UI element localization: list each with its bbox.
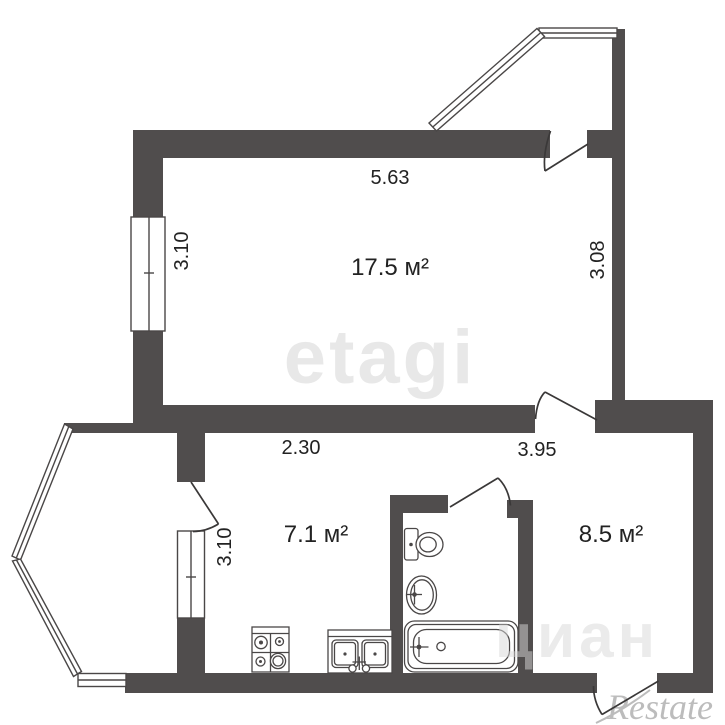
kitchen-sink-drain-dot <box>343 652 346 655</box>
dimension-top: 5.63 <box>371 167 410 189</box>
kitchen-sink-tap-knob <box>362 665 369 672</box>
wall-ledge-left <box>64 423 136 433</box>
stove-burner-dot <box>259 660 262 663</box>
stove-burner-dot <box>278 640 281 643</box>
wall-top-right <box>587 130 613 158</box>
window-left-wall <box>131 217 165 331</box>
room-area-kitchen: 7.1 м² <box>284 521 349 548</box>
bathtub-tap-dot <box>417 645 422 650</box>
kitchen-sink-drain-dot <box>373 652 376 655</box>
dimension-left: 3.10 <box>171 232 193 271</box>
watermark-restate: Restate <box>606 687 713 725</box>
wall-balcony-upper <box>177 433 205 482</box>
stove-burner-dot <box>259 641 263 645</box>
wall-right-lower <box>693 400 713 693</box>
room-area-living: 17.5 м² <box>351 254 429 281</box>
bathtub-drain-icon <box>437 642 445 650</box>
floorplan-image: etagi <box>0 0 725 725</box>
basin-tap-dot <box>412 592 417 597</box>
wall-middle-left <box>133 405 535 433</box>
wall-right-upper <box>612 29 625 433</box>
dimension-middle-left: 2.30 <box>282 437 321 459</box>
watermark-cian: циан <box>495 602 659 671</box>
kitchen-sink-tap-knob <box>349 665 356 672</box>
dimension-balcony: 3.10 <box>214 528 236 567</box>
room-area-hallway: 8.5 м² <box>579 521 644 548</box>
wall-top-left <box>133 130 550 158</box>
stove-burner-ring-icon <box>273 656 283 666</box>
dimension-middle-right: 3.95 <box>518 439 557 461</box>
floorplan-svg: etagi <box>0 0 725 725</box>
wall-bath-top-left <box>403 495 448 513</box>
toilet-bowl-inner-icon <box>420 537 436 552</box>
toilet-button-dot <box>409 543 413 547</box>
wall-balcony-lower <box>177 618 205 678</box>
dimension-right: 3.08 <box>587 241 609 280</box>
watermark-etagi: etagi <box>284 315 476 400</box>
